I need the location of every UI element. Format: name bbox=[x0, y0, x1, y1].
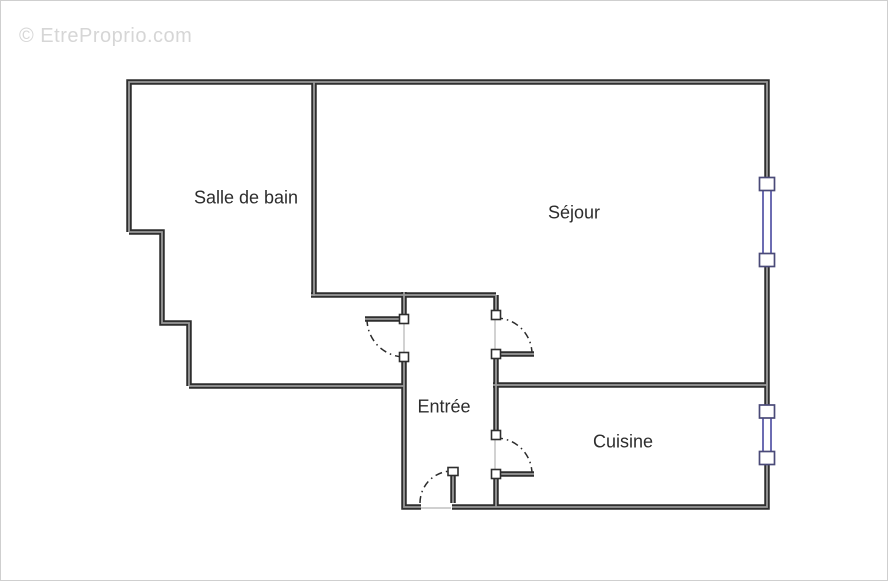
floorplan-canvas: © EtreProprio.com bbox=[0, 0, 888, 581]
window-kitchen bbox=[760, 405, 775, 465]
floorplan-drawing bbox=[1, 1, 888, 581]
door-post bbox=[492, 470, 501, 479]
door-post bbox=[400, 353, 409, 362]
door-post bbox=[492, 431, 501, 440]
door-post bbox=[492, 350, 501, 359]
door-arc-bathroom bbox=[367, 319, 404, 357]
window-glazing bbox=[763, 417, 771, 452]
window-post bbox=[760, 452, 775, 465]
door-arc-kitchen bbox=[496, 438, 532, 474]
window-glazing bbox=[763, 189, 771, 254]
door-post bbox=[492, 311, 501, 320]
window-post bbox=[760, 178, 775, 191]
window-post bbox=[760, 405, 775, 418]
window-living-room bbox=[760, 178, 775, 267]
door-arc-living-room bbox=[496, 318, 532, 354]
room-label-bathroom: Salle de bain bbox=[194, 188, 298, 209]
room-label-kitchen: Cuisine bbox=[593, 432, 653, 453]
window-post bbox=[760, 254, 775, 267]
room-label-living-room: Séjour bbox=[548, 203, 600, 224]
door-post bbox=[400, 315, 409, 324]
door-post-entry-tip bbox=[448, 468, 458, 476]
room-label-entrance: Entrée bbox=[417, 397, 470, 418]
walls-core bbox=[129, 82, 767, 507]
